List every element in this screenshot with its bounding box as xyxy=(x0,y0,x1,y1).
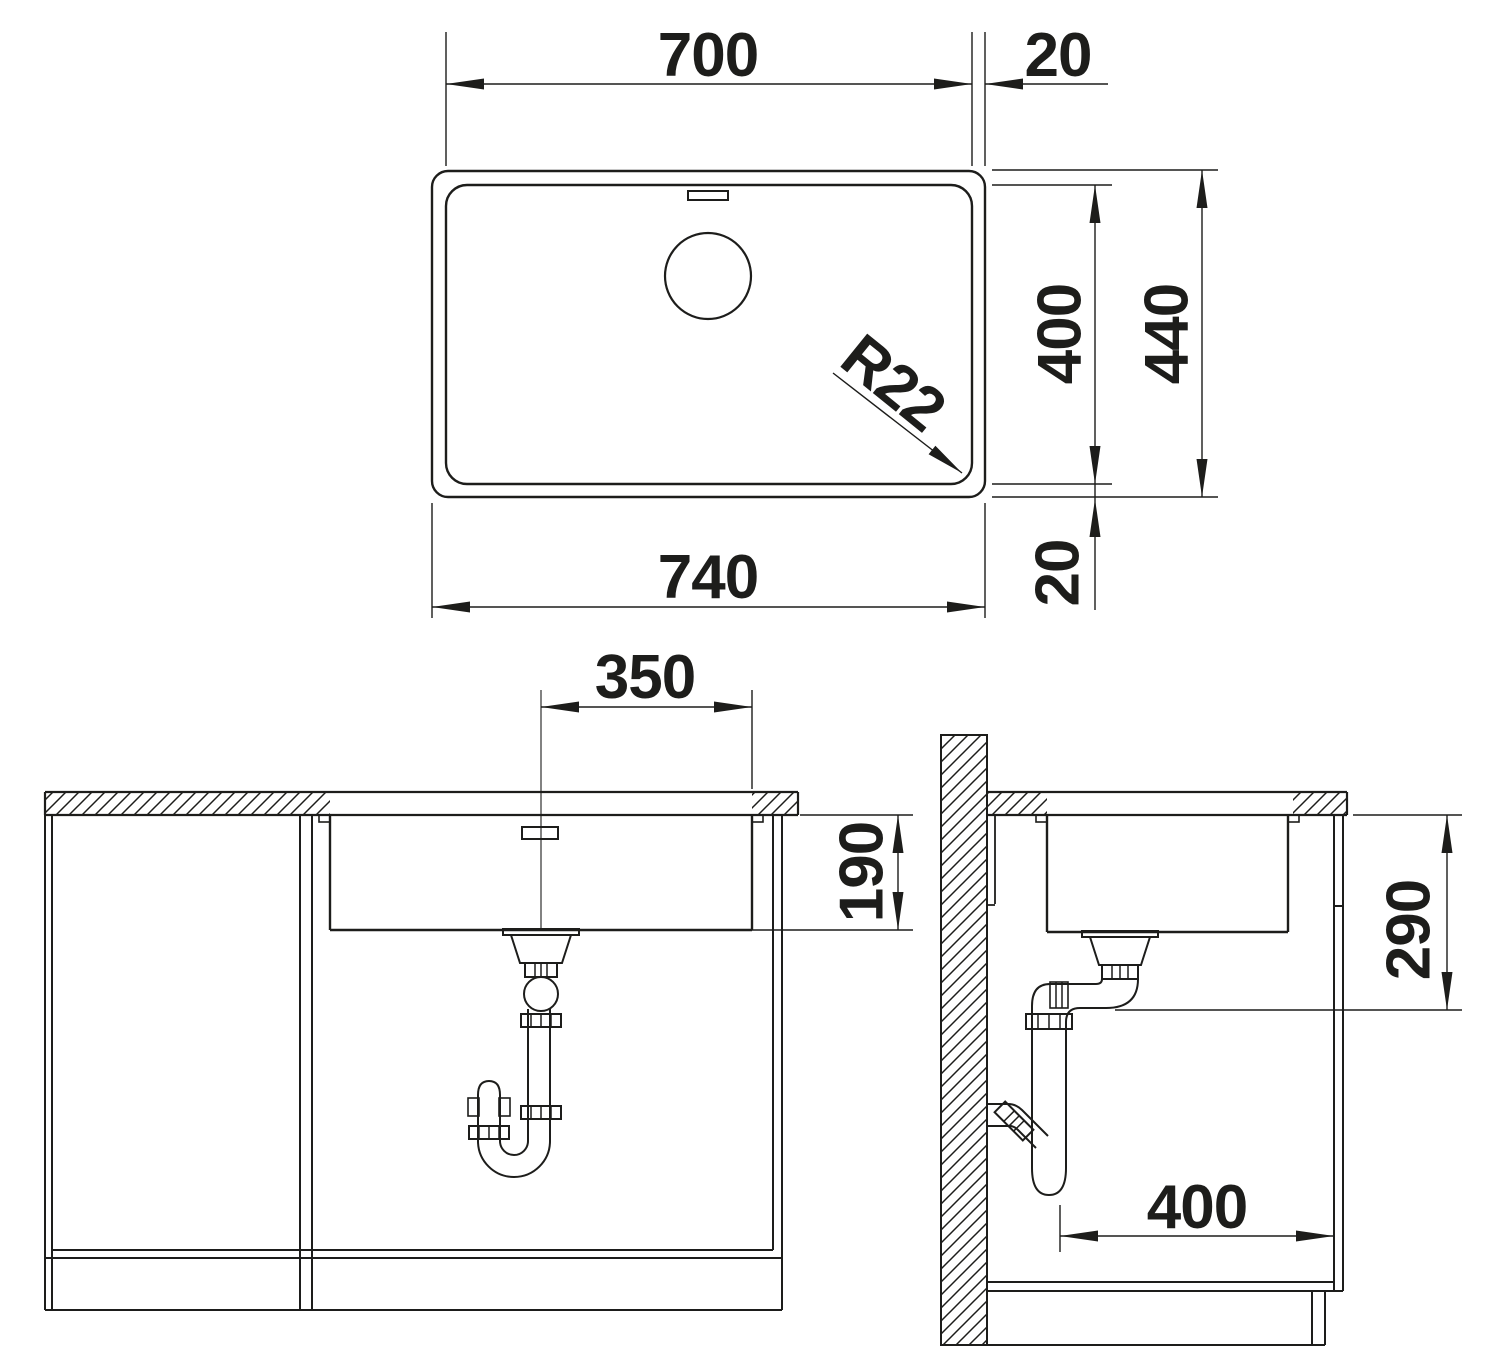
dim-top-outer-depth: 440 xyxy=(1133,284,1202,384)
dim-top-inner-depth: 400 xyxy=(1026,284,1095,384)
dim-top-outer-width: 740 xyxy=(658,543,758,612)
dim-side-outlet-height: 290 xyxy=(1375,880,1444,980)
tailpipe-front xyxy=(528,1009,550,1141)
side-view-arrowheads xyxy=(1060,815,1453,1242)
technical-drawing-svg: 700 20 400 440 740 20 R22 xyxy=(0,0,1500,1360)
side-view-dimension-lines xyxy=(1060,815,1447,1236)
cabinet-outline-front xyxy=(45,815,782,1310)
sink-bowl-outline xyxy=(446,185,972,484)
elbow-side xyxy=(1032,979,1138,1195)
overflow-slot xyxy=(688,191,728,200)
dim-front-bowl-depth: 190 xyxy=(828,822,897,922)
drain-hole xyxy=(665,233,751,319)
cabinet-outline-side xyxy=(987,815,1343,1345)
ball-joint-front xyxy=(524,977,558,1011)
back-rim-strip xyxy=(987,815,995,905)
u-bend-front xyxy=(478,1141,550,1177)
counter-hatch-left xyxy=(45,793,330,814)
drain-trap-side xyxy=(987,931,1158,1195)
side-view: 290 400 xyxy=(941,735,1462,1345)
overflow-slot-front xyxy=(522,827,558,839)
dim-top-inner-width: 700 xyxy=(658,21,758,90)
drain-trap-front xyxy=(468,929,579,1177)
dim-side-cabinet-depth: 400 xyxy=(1147,1173,1247,1242)
basin-outline-side xyxy=(1047,815,1288,932)
dim-top-rim-bottom: 20 xyxy=(1024,540,1093,607)
top-view: 700 20 400 440 740 20 R22 xyxy=(432,21,1218,618)
dim-front-drain-offset: 350 xyxy=(595,643,695,712)
strainer-cup-side xyxy=(1090,937,1150,965)
dim-top-corner-radius: R22 xyxy=(828,321,957,444)
counter-hatch-back xyxy=(987,793,1047,814)
drawing-canvas: 700 20 400 440 740 20 R22 xyxy=(0,0,1500,1360)
front-view: 350 190 xyxy=(45,643,913,1310)
top-view-extension-lines xyxy=(432,32,1218,618)
counter-hatch-right xyxy=(752,793,798,814)
dim-top-rim-right: 20 xyxy=(1025,21,1092,90)
wall-section xyxy=(941,735,987,1345)
strainer-cup-front xyxy=(511,935,571,963)
sink-outer-rim xyxy=(432,171,985,497)
counter-hatch-front-edge xyxy=(1293,793,1347,814)
